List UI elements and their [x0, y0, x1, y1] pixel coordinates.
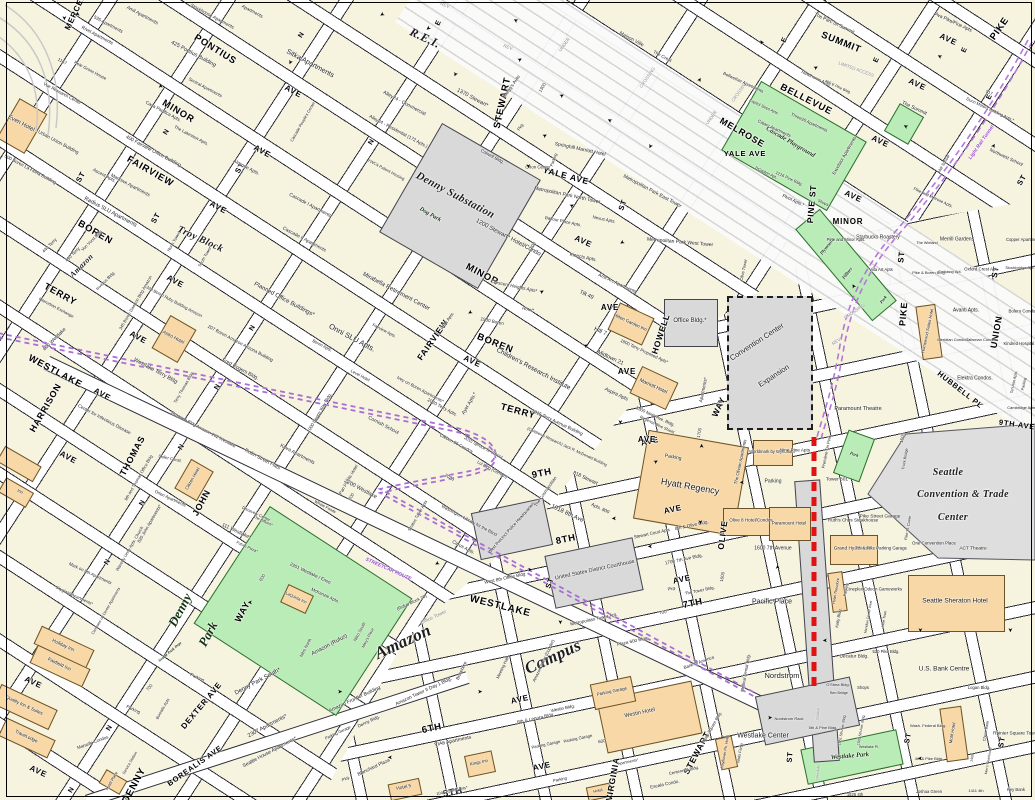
building-label-embassy-apt: Embassy Apt. [938, 270, 961, 274]
building-label-villa-art-apts: Villa Art Apts [869, 268, 892, 272]
building-label-pike-street-garage: Pike Street Garage [860, 514, 901, 519]
building-label-oxford-crest-apt: Oxford Crest Apt. [964, 268, 998, 273]
building-label-1411-4th: 1411 4th [968, 789, 983, 793]
building-label-convention-trade: Convention & Trade [917, 490, 1009, 501]
building-label-paramount-hotel: Paramount Hotel [772, 522, 806, 527]
building-label-act-theatre: ACT Theatre [959, 546, 986, 551]
one-way-arrow: ➤ [647, 543, 652, 550]
one-way-arrow: ➤ [1007, 627, 1014, 632]
one-way-arrow: ➤ [699, 443, 706, 448]
building-label-seattle-sheraton-hotel: Seattle Sheraton Hotel [922, 599, 987, 606]
one-way-arrow: ➤ [697, 519, 704, 524]
building-label-parking: Parking [765, 479, 782, 484]
street-label-ave: AVE [638, 436, 656, 444]
building-label-talisman-condo: Talisman Condo. [966, 338, 996, 342]
building-label-logan-bldg: Logan Bldg. [968, 686, 990, 690]
building-label-1525-4th: 1525 4th [847, 793, 863, 797]
one-way-arrow: ➤ [822, 637, 827, 644]
one-way-arrow: ➤ [158, 83, 165, 88]
one-way-arrow: ➤ [917, 627, 924, 632]
building-label-key-bank: Key Bank [1007, 788, 1025, 792]
building-label-stockbridge-apt: Stockbridge Apt. [1005, 266, 1034, 270]
building-label-rainier-square-tower: Rainier Square Tower [993, 731, 1035, 736]
one-way-arrow: ➤ [527, 567, 532, 574]
building-label-olive-8-hotel-condos: Olive 8 Hotel/Condos [729, 519, 772, 524]
building-label-center: Center [938, 513, 968, 524]
one-way-arrow: ➤ [611, 515, 616, 522]
building-label-seattle: Seattle [933, 468, 964, 479]
building-label-pacific-place: Pacific Place [752, 598, 792, 605]
building-label-cambridge-apts: Cambridge Apts. [1007, 406, 1035, 410]
building-label-cineplex-odeon-gameworks: Cineplex Odeon Gameworks [846, 588, 902, 593]
one-way-arrow: ➤ [337, 689, 342, 696]
one-way-arrow: ➤ [477, 689, 482, 696]
building-label-one-convention-place: One Convention Place [912, 542, 956, 547]
building-label-merrill-gardens: Merrill Gardens [940, 237, 974, 242]
street-label-minor: MINOR [833, 218, 864, 226]
one-way-arrow: ➤ [767, 715, 772, 722]
convention-center-expansion [727, 296, 813, 430]
building-label-meridian-condos: Meridian Condos. [937, 338, 968, 342]
building-label-nordstrom: Nordstrom [764, 672, 799, 680]
building-label-elektra-condos: Elektra Condos. [957, 376, 993, 381]
street-label-yale-ave: YALE AVE [724, 150, 766, 158]
building-label-520-pike-bldg: 520 Pike Bldg. [872, 650, 899, 654]
street-label-st: ST [786, 751, 795, 763]
building-label-bolero-condos: Bolero Condos [1008, 310, 1035, 315]
building-label-copper-apartments: Copper Apartments [1006, 238, 1035, 242]
seattle-street-map: MERCERPONTIUSMINORFAIRVIEWBORENTERRYWEST… [0, 0, 1035, 800]
building-label-the-wieland: The Wieland [916, 241, 937, 245]
one-way-arrow: ➤ [917, 755, 922, 762]
one-way-arrow: ➤ [617, 419, 624, 424]
one-way-arrow: ➤ [387, 754, 392, 761]
melrose-sliver-park [1023, 428, 1035, 474]
street-label-st: ST [897, 251, 906, 264]
building-label-kindred-hospital-seattle: Kindred Hospital Seattle [1004, 342, 1035, 346]
building-label-avanti-apts: Avanti Apts. [953, 308, 979, 313]
building-label-nine-pine-apts: Nine Pine Apts [780, 449, 810, 454]
building-label-westlake-center: Westlake Center [737, 732, 789, 739]
building-label-paramount-theatre: Paramount Theatre [834, 407, 881, 413]
building-label-ben-bridge: Ben Bridge [830, 692, 848, 696]
street-label-ave: AVE [601, 304, 619, 312]
building-label-u-s-bank-centre: U.S. Bank Centre [919, 667, 970, 674]
one-way-arrow: ➤ [75, 11, 82, 16]
building-label-7th-pike-parking-garage: 7th & Pike Parking Garage [855, 547, 907, 552]
building-label-decatur-bldg: Decatur Bldg. [839, 654, 868, 659]
building-label-nordstrom-rack: Nordstrom Rack [775, 717, 804, 721]
one-way-arrow: ➤ [525, 163, 532, 168]
building-label-pine-and-minor-apts: Pine and Minor Apts. [827, 238, 866, 242]
building-label-tower-801: Tower 801 [826, 477, 848, 482]
one-way-arrow: ➤ [557, 619, 564, 624]
building-label-shops: Shops [857, 686, 869, 690]
one-way-arrow: ➤ [775, 564, 782, 569]
building-label-westlake-pl: Westlake Pl. [859, 746, 879, 750]
building-label-joshua-green: Joshua Green [916, 790, 942, 794]
building-label-wash-federal-bldg: Wash. Federal Bldg. [910, 724, 946, 728]
street-label-ave: AVE [618, 368, 636, 376]
one-way-arrow: ➤ [61, 15, 68, 20]
building-label-1600-7th-avenue: 1600 7th Avenue [754, 546, 791, 551]
one-way-arrow: ➤ [247, 599, 252, 606]
building-label-o-shea-bldg: O'Shea Bldg. [826, 683, 849, 687]
building-label-office-bldg: Office Bldg.* [673, 318, 706, 324]
one-way-arrow: ➤ [739, 479, 744, 486]
building-label-5th-pine-bldg: 5th & Pine Bldg. [809, 726, 838, 730]
